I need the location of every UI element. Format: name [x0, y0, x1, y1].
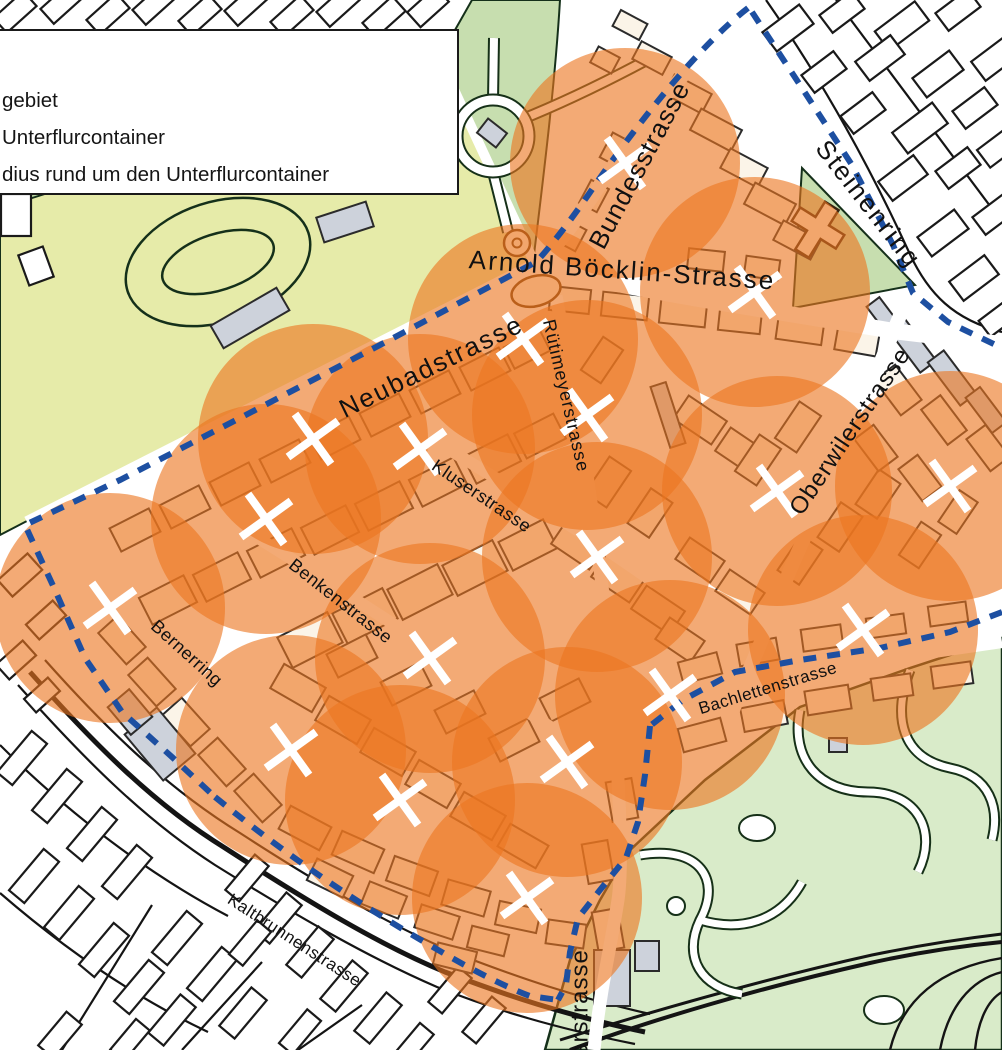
legend: gebiet Unterflurcontainer dius rund um d…	[0, 30, 458, 194]
legend-item-pilot-area: gebiet	[2, 89, 58, 112]
building	[32, 769, 82, 823]
building	[635, 941, 659, 971]
building	[40, 0, 83, 24]
building	[840, 92, 885, 134]
building	[917, 210, 968, 257]
building	[952, 87, 997, 129]
building	[801, 51, 846, 93]
building	[0, 0, 37, 33]
building	[971, 35, 1002, 81]
building	[132, 0, 175, 25]
building	[148, 994, 195, 1045]
pond	[667, 897, 685, 915]
building	[152, 911, 202, 965]
building	[44, 886, 94, 940]
pond	[864, 996, 904, 1024]
building	[977, 128, 1002, 167]
building	[79, 923, 129, 977]
building	[354, 992, 401, 1043]
building	[67, 807, 117, 861]
building	[219, 987, 266, 1038]
building	[0, 731, 47, 785]
building	[912, 51, 963, 98]
street-label: erstrasse	[566, 949, 593, 1050]
building	[892, 103, 948, 154]
building	[613, 10, 648, 40]
building	[279, 1009, 321, 1050]
building	[38, 1012, 82, 1050]
building	[878, 155, 928, 201]
building	[316, 0, 359, 27]
building	[972, 193, 1002, 235]
building	[110, 1019, 150, 1050]
building	[407, 0, 449, 27]
legend-item-container: Unterflurcontainer	[2, 126, 165, 149]
legend-item-radius: dius rund um den Unterflurcontainer	[2, 163, 329, 186]
building	[935, 0, 980, 31]
building	[762, 5, 813, 52]
map-page: BundesstrasseArnold Böcklin-StrasseStein…	[0, 0, 1002, 1050]
building	[394, 1023, 434, 1050]
city-map: BundesstrasseArnold Böcklin-StrasseStein…	[0, 0, 1002, 1050]
pond	[739, 815, 775, 841]
building	[9, 849, 59, 903]
building	[224, 0, 267, 26]
building	[949, 255, 999, 301]
building	[1, 194, 31, 236]
building	[979, 299, 1002, 337]
